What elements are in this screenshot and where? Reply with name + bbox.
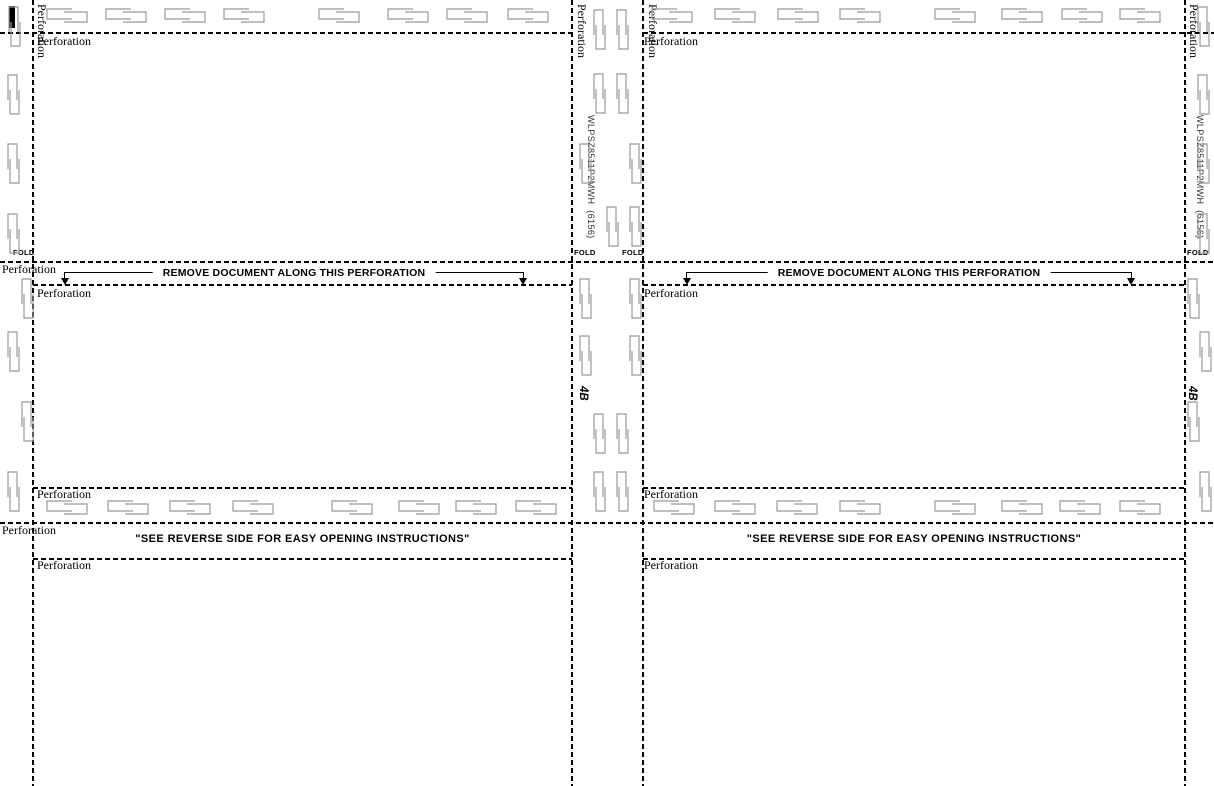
glue-tab [592, 470, 606, 513]
glue-tab [106, 499, 150, 515]
perforation-label: Perforation [644, 287, 698, 300]
glue-tab [933, 7, 977, 23]
reverse-side-note-left: "SEE REVERSE SIDE FOR EASY OPENING INSTR… [33, 533, 572, 545]
form-code-left: 4B [576, 386, 590, 401]
perforation-line-horizontal [33, 487, 572, 489]
perforation-line-horizontal [0, 261, 1214, 263]
glue-tab [1000, 499, 1044, 515]
perforation-line-horizontal [643, 284, 1185, 286]
glue-tab [838, 499, 882, 515]
glue-tab [1186, 400, 1200, 443]
glue-tab [45, 499, 89, 515]
glue-tab [713, 499, 757, 515]
glue-tab [615, 470, 629, 513]
glue-tab [6, 142, 20, 185]
glue-tab [1060, 7, 1104, 23]
perforation-label: Perforation [37, 559, 91, 572]
glue-tab [1196, 212, 1210, 255]
glue-tab [838, 7, 882, 23]
glue-tab [6, 330, 20, 373]
glue-tab [1000, 7, 1044, 23]
glue-tab [1186, 277, 1200, 320]
glue-tab [317, 7, 361, 23]
glue-tab [45, 7, 89, 23]
glue-tab [933, 499, 977, 515]
perforation-line-vertical [571, 0, 573, 786]
glue-tab [397, 499, 441, 515]
perforation-label-vertical: Perforation [575, 4, 588, 58]
glue-tab [628, 334, 642, 377]
glue-tab [615, 8, 629, 51]
perforation-line-horizontal [0, 522, 1214, 524]
glue-tab [628, 205, 642, 248]
perforation-line-horizontal [33, 284, 572, 286]
glue-tab [454, 499, 498, 515]
glue-tab [6, 470, 20, 513]
glue-tab [1196, 73, 1210, 116]
remove-document-banner-text: REMOVE DOCUMENT ALONG THIS PERFORATION [153, 267, 436, 279]
glue-tab [1118, 499, 1162, 515]
glue-tab [231, 499, 275, 515]
reverse-side-note-right: "SEE REVERSE SIDE FOR EASY OPENING INSTR… [643, 533, 1185, 545]
glue-tab [386, 7, 430, 23]
glue-tab [592, 72, 606, 115]
glue-tab [6, 212, 20, 255]
glue-tab [578, 334, 592, 377]
glue-tab [578, 277, 592, 320]
perforation-line-vertical [32, 0, 34, 786]
glue-tab [330, 499, 374, 515]
glue-tab [6, 73, 20, 116]
perforation-label: Perforation [37, 287, 91, 300]
perforation-line-horizontal [643, 487, 1185, 489]
glue-tab [628, 277, 642, 320]
perforation-line-horizontal [33, 558, 572, 560]
perforation-line-horizontal [643, 32, 1214, 34]
perforation-line-vertical [642, 0, 644, 786]
glue-tab [1196, 5, 1210, 48]
glue-tab [104, 7, 148, 23]
perforation-line-horizontal [643, 558, 1185, 560]
glue-tab [222, 7, 266, 23]
glue-tab [20, 277, 34, 320]
fold-label: FOLD [622, 249, 644, 257]
perforation-label: Perforation [644, 559, 698, 572]
glue-tab [776, 7, 820, 23]
glue-tab [445, 7, 489, 23]
glue-tab [1198, 330, 1212, 373]
remove-document-banner-text: REMOVE DOCUMENT ALONG THIS PERFORATION [768, 267, 1051, 279]
perforation-label: Perforation [2, 263, 56, 276]
glue-tab [163, 7, 207, 23]
glue-tab [168, 499, 212, 515]
perforation-line-vertical [1184, 0, 1186, 786]
glue-tab [615, 72, 629, 115]
perforation-label: Perforation [2, 524, 56, 537]
glue-tab [1058, 499, 1102, 515]
glue-tab [592, 8, 606, 51]
glue-tab [1196, 142, 1210, 185]
glue-tab [652, 499, 696, 515]
glue-tab [20, 400, 34, 443]
glue-tab [578, 142, 592, 185]
glue-tab [506, 7, 550, 23]
glue-tab [713, 7, 757, 23]
glue-tab [592, 412, 606, 455]
glue-tab [605, 205, 619, 248]
glue-tab [514, 499, 558, 515]
form-proof-sheet: WLPSZ8511P2MWH (6156) WLPSZ8511P2MWH (61… [0, 0, 1214, 786]
glue-tab [615, 412, 629, 455]
form-code-right: 4B [1185, 386, 1199, 401]
glue-tab [1118, 7, 1162, 23]
glue-tab [1198, 470, 1212, 513]
glue-tab [775, 499, 819, 515]
glue-tab [7, 5, 21, 48]
glue-tab [650, 7, 694, 23]
fold-label: FOLD [574, 249, 596, 257]
glue-tab [628, 142, 642, 185]
